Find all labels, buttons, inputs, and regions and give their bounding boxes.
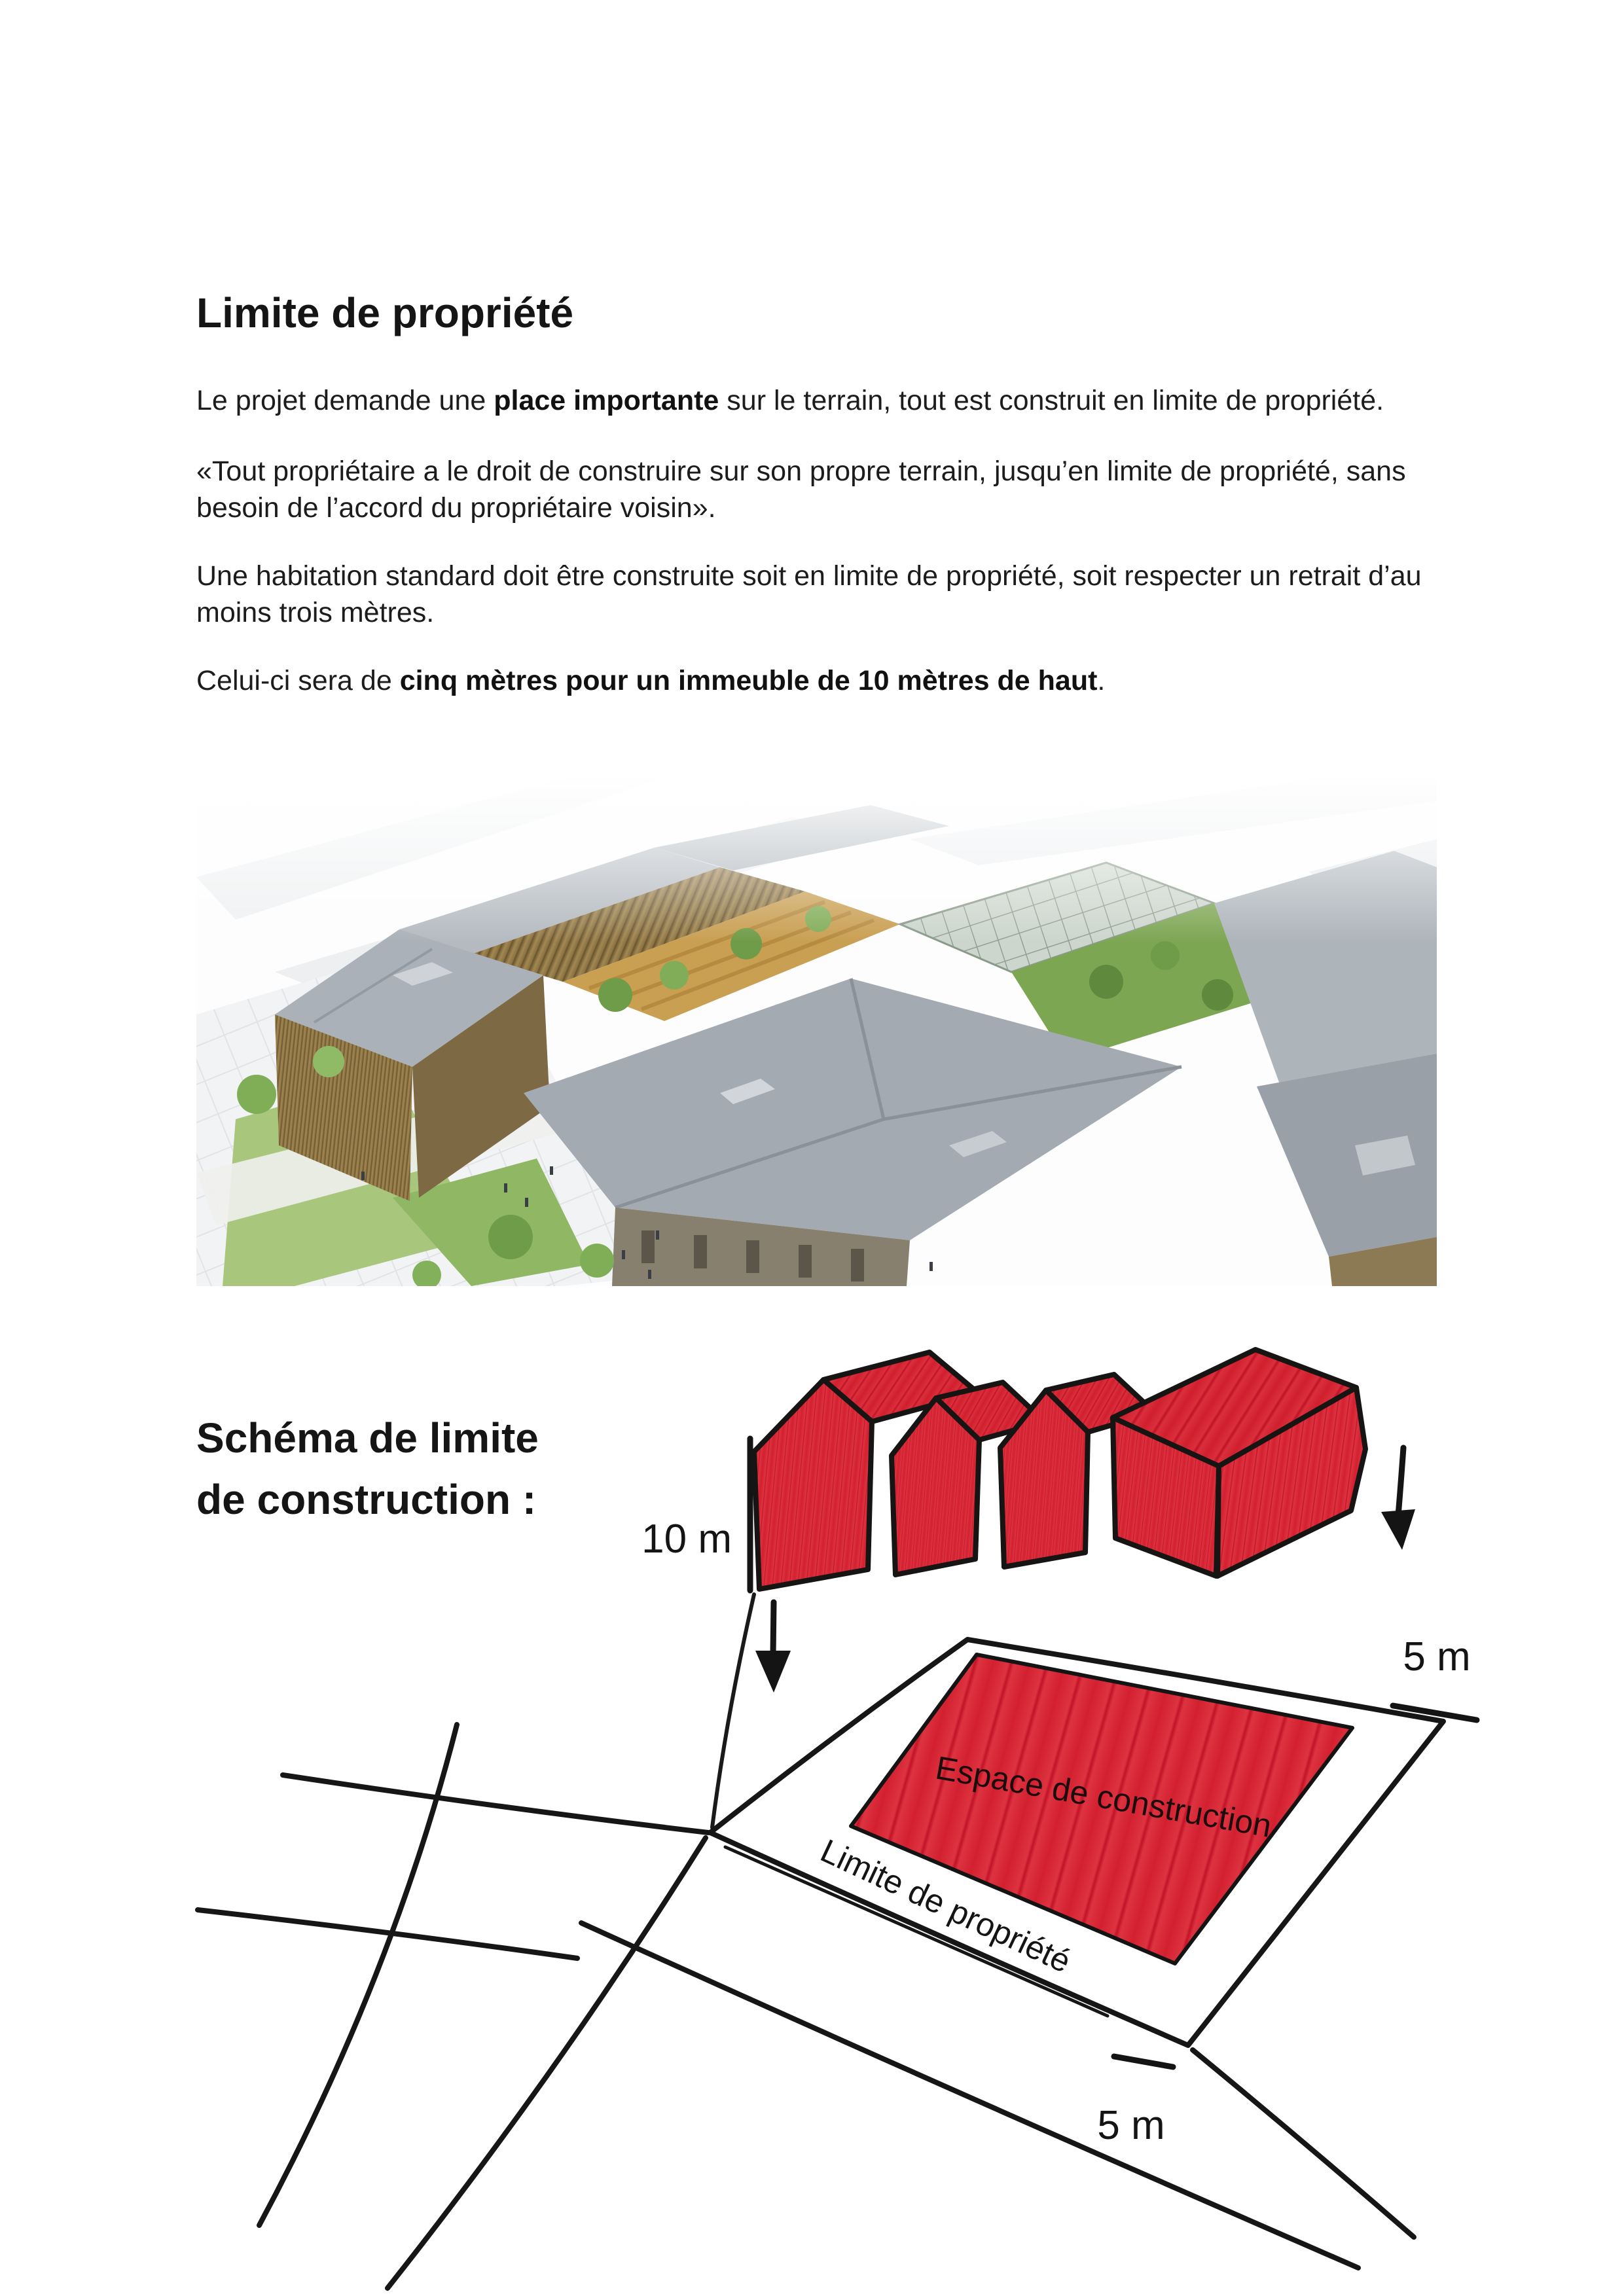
- paragraph-habitation: Une habitation standard doit être constr…: [196, 558, 1460, 631]
- paragraph-text: .: [1097, 665, 1105, 696]
- down-arrow-left: [755, 1602, 791, 1693]
- red-buildings-sketch: [754, 1350, 1365, 1589]
- paragraph-text: sur le terrain, tout est construit en li…: [719, 385, 1384, 416]
- construction-schematic: 10 m Espace de construction Limite de pr…: [0, 1309, 1624, 2296]
- height-dimension: 10 m: [641, 1439, 750, 1590]
- paragraph-bold: cinq mètres pour un immeuble de 10 mètre…: [400, 665, 1098, 696]
- setback-top-label: 5 m: [1403, 1634, 1470, 1679]
- paragraph-bold: place importante: [494, 385, 719, 416]
- paragraph-text: Celui-ci sera de: [196, 665, 400, 696]
- paragraph-text: Le projet demande une: [196, 385, 494, 416]
- construction-schematic-figure: 10 m Espace de construction Limite de pr…: [0, 1309, 1624, 2296]
- paragraph-project: Le projet demande une place importante s…: [196, 382, 1460, 419]
- projection-line: [712, 1594, 754, 1827]
- aerial-render: [196, 779, 1437, 1286]
- setback-bottom-label: 5 m: [1097, 2103, 1164, 2148]
- render-artwork: [196, 779, 1437, 1286]
- aerial-render-figure: [196, 779, 1437, 1286]
- setback-dimension-bottom: 5 m: [1097, 2056, 1173, 2148]
- height-label: 10 m: [641, 1516, 732, 1562]
- setback-bottom-tick: [1114, 2056, 1173, 2067]
- page-title: Limite de propriété: [196, 289, 573, 337]
- down-arrow-right: [1381, 1448, 1415, 1550]
- paragraph-quote: «Tout propriétaire a le droit de constru…: [196, 453, 1460, 526]
- document-page: Limite de propriété Le projet demande un…: [0, 0, 1624, 2296]
- setback-dimension-top: 5 m: [1393, 1634, 1477, 1720]
- paragraph-retrait: Celui-ci sera de cinq mètres pour un imm…: [196, 662, 1460, 699]
